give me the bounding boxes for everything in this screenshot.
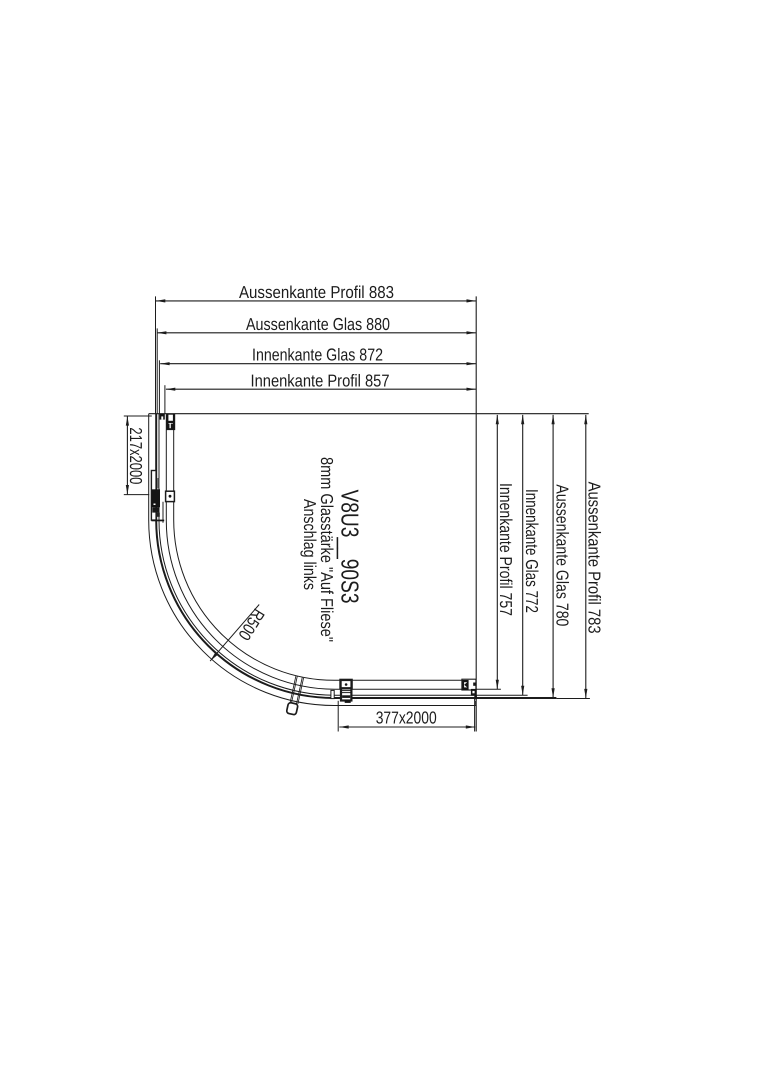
- svg-text:377x2000: 377x2000: [376, 708, 437, 728]
- svg-text:Innenkante Profil 757: Innenkante Profil 757: [496, 483, 516, 616]
- svg-text:Aussenkante Glas 780: Aussenkante Glas 780: [552, 484, 572, 626]
- svg-text:Innenkante Glas 872: Innenkante Glas 872: [252, 345, 383, 365]
- svg-text:Innenkante Glas 772: Innenkante Glas 772: [522, 489, 542, 613]
- svg-text:V8U3__90S3: V8U3__90S3: [336, 490, 363, 604]
- svg-text:Aussenkante Glas 880: Aussenkante Glas 880: [246, 314, 390, 334]
- svg-text:Aussenkante Profil 883: Aussenkante Profil 883: [239, 282, 394, 302]
- svg-text:Anschlag links: Anschlag links: [300, 499, 320, 590]
- svg-text:217x2000: 217x2000: [126, 427, 146, 484]
- svg-text:Aussenkante Profil 783: Aussenkante Profil 783: [584, 482, 604, 634]
- svg-text:Innenkante Profil 857: Innenkante Profil 857: [251, 370, 390, 390]
